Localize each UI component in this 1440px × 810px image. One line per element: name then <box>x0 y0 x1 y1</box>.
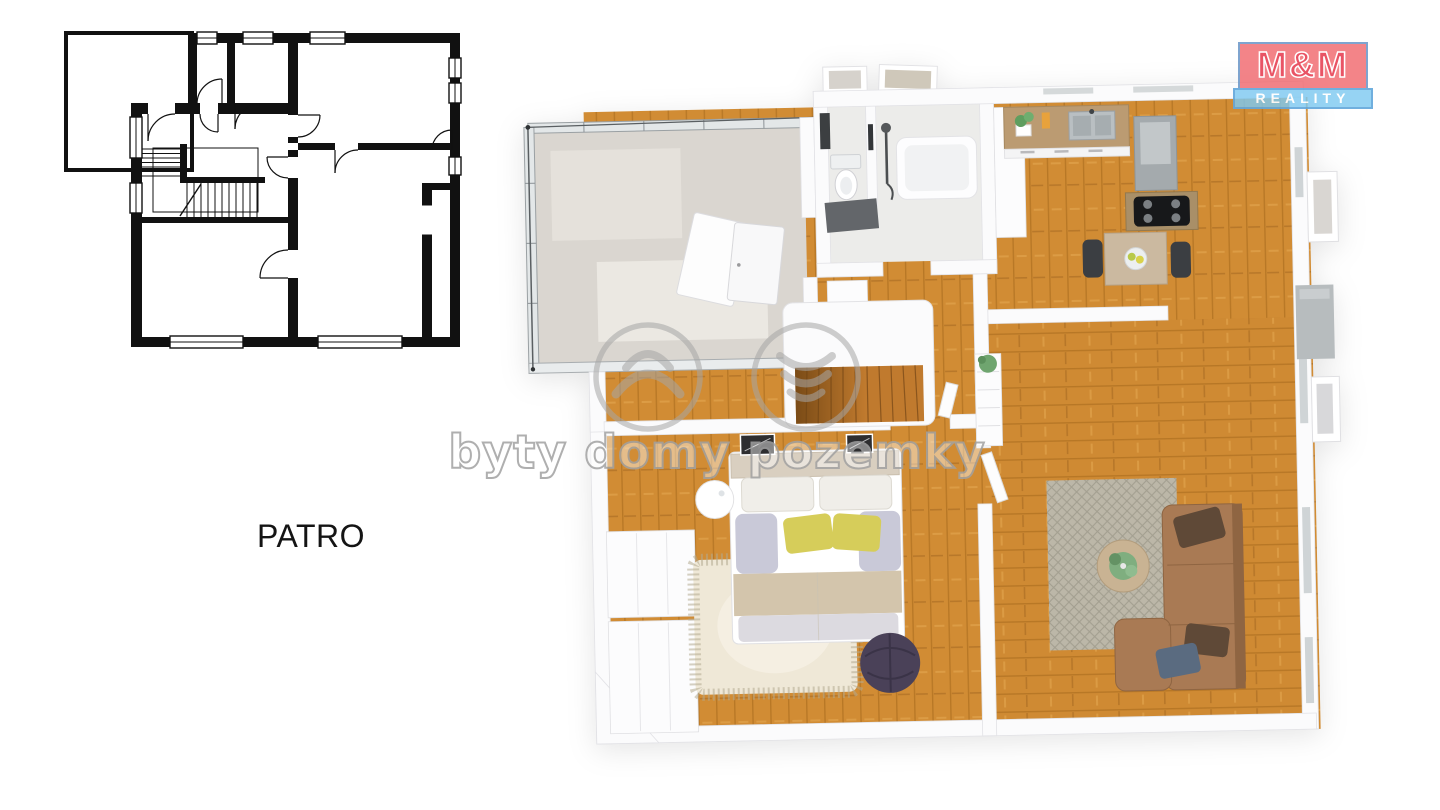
terrace <box>524 117 819 373</box>
agency-logo: M&M REALITY <box>1233 42 1373 109</box>
floor-label: PATRO <box>257 518 365 555</box>
coffee-table <box>1097 539 1150 592</box>
bedside-table <box>695 480 734 519</box>
yellow-pillow <box>831 513 881 552</box>
kitchen-counter <box>1004 105 1130 159</box>
agency-logo-mm: M&M <box>1238 42 1368 88</box>
doorway-opening <box>820 113 831 149</box>
floor-plan-3d-render <box>485 45 1390 770</box>
yellow-pillow <box>782 513 834 555</box>
kitchen-island <box>1125 191 1198 230</box>
staircase <box>783 300 936 428</box>
hall-shelf-unit <box>975 354 1003 447</box>
shower-mat <box>825 198 880 233</box>
real-estate-floorplan-page: byty domy pozemky PATRO M&M REALITY <box>0 0 1440 810</box>
dining-chair <box>1170 242 1191 278</box>
bathtub <box>896 136 977 200</box>
floor-plan-2d <box>55 20 465 350</box>
juice-glass <box>1042 112 1050 128</box>
sink <box>1069 109 1116 140</box>
bed <box>729 449 905 645</box>
wardrobe <box>606 530 698 734</box>
plan2d-walls <box>66 33 460 347</box>
dining-chair <box>1082 239 1103 277</box>
agency-logo-reality: REALITY <box>1233 88 1373 109</box>
